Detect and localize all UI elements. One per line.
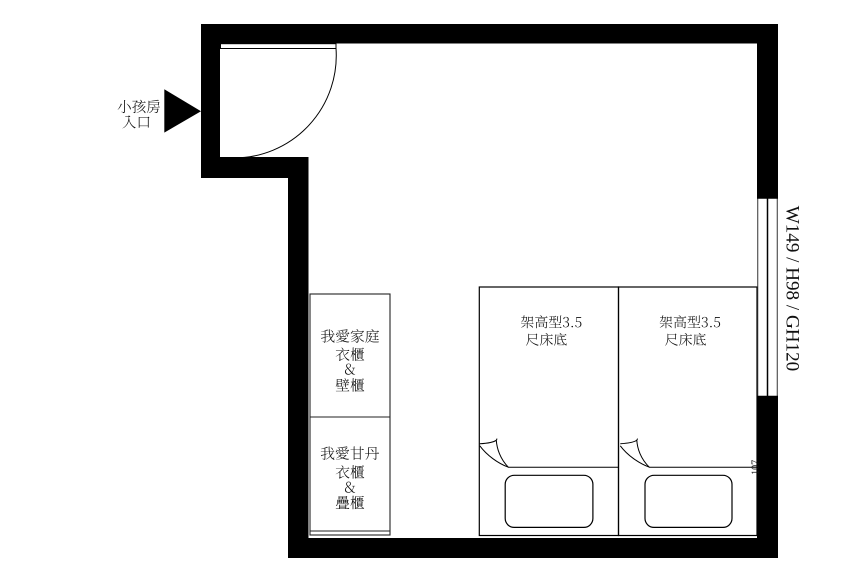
svg-text:107: 107 xyxy=(750,460,761,475)
svg-text:W149 / H98 / GH120: W149 / H98 / GH120 xyxy=(782,206,803,371)
